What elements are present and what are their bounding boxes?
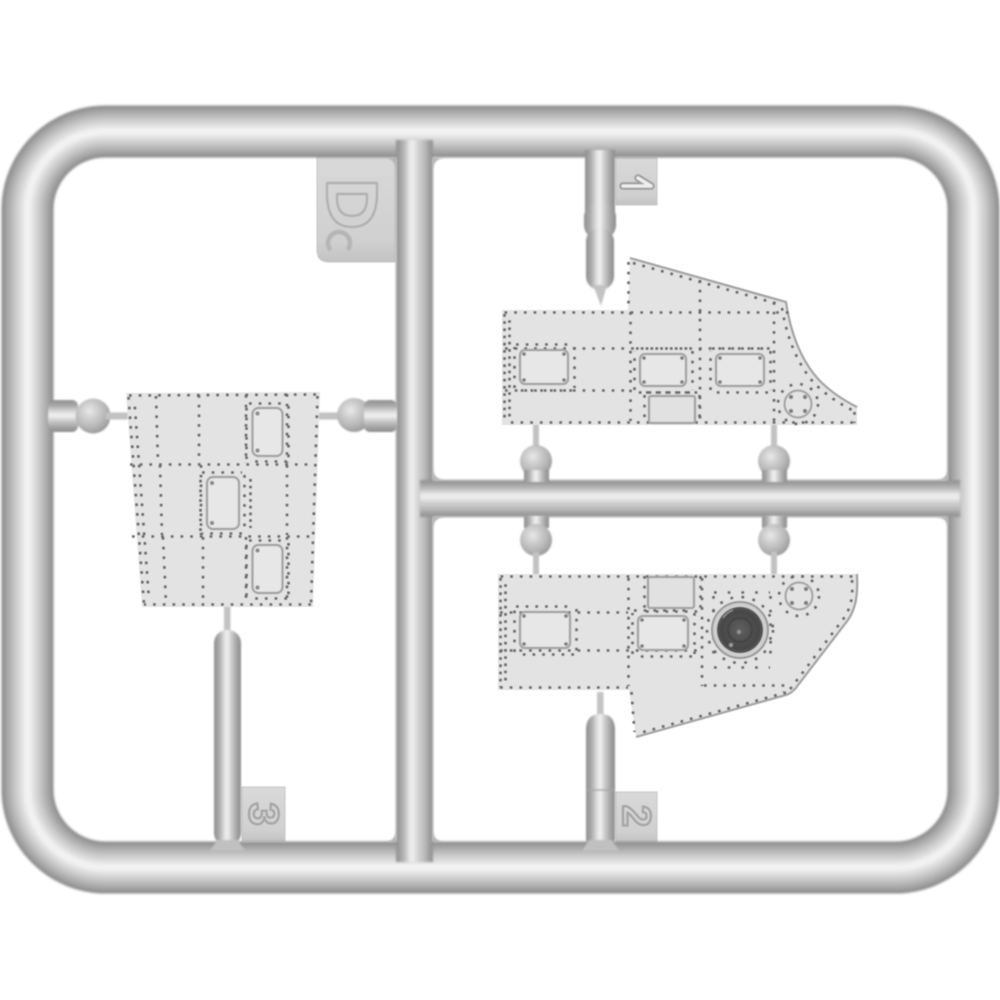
- svg-text:2: 2: [614, 805, 658, 827]
- svg-text:3: 3: [241, 802, 288, 825]
